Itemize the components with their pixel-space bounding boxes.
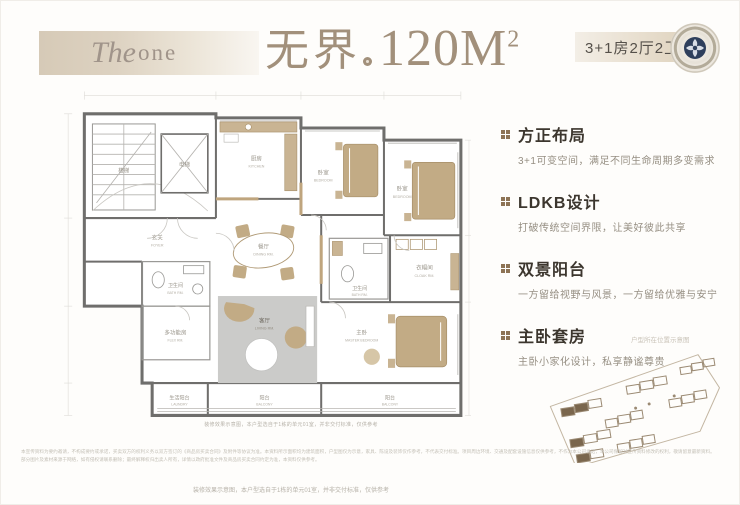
page-title: 无界 120M2 [265, 15, 520, 73]
svg-text:FLEX RM.: FLEX RM. [168, 339, 184, 343]
svg-text:MASTER BEDROOM: MASTER BEDROOM [345, 339, 378, 343]
title-area: 120M2 [379, 25, 520, 73]
plan-caption: 装修效果示意图，本户型选自于1栋的单元01室，并非交付标准，仅供参考 [151, 421, 431, 428]
brand-logo-banner: The one [39, 31, 259, 75]
svg-text:卫生间: 卫生间 [168, 282, 183, 289]
siteplan-caption: 户型所在位置示意图 [631, 334, 690, 344]
four-square-bullet-icon [501, 264, 510, 273]
four-square-bullet-icon [501, 130, 510, 139]
svg-text:衣帽间: 衣帽间 [416, 264, 433, 272]
living-area [218, 296, 317, 383]
svg-text:电梯: 电梯 [179, 160, 191, 168]
feature-title: 方正布局 [518, 122, 586, 146]
dot-separator-icon [363, 57, 372, 66]
svg-text:生活阳台: 生活阳台 [169, 394, 189, 401]
svg-text:KITCHEN: KITCHEN [248, 164, 264, 168]
svg-text:DINING RM.: DINING RM. [253, 253, 273, 257]
svg-text:BATH RM.: BATH RM. [167, 291, 183, 295]
feature-title: 双景阳台 [518, 256, 586, 280]
feature-item: 双景阳台 一方留给视野与风景，一方留给优雅与安宁 [501, 256, 729, 301]
svg-text:阳台: 阳台 [385, 394, 395, 401]
poster-page: The one 无界 120M2 3+1房2厅2卫 [0, 0, 740, 505]
legal-disclaimer: 本宣传资料为要约邀请，不构成要约或承诺，买卖双方的权利义务以双方签订的《商品房买… [21, 448, 727, 464]
svg-text:卧室: 卧室 [318, 169, 330, 177]
svg-text:楼梯: 楼梯 [118, 167, 130, 175]
feature-desc: 3+1可变空间，满足不同生命周期多变需求 [501, 152, 729, 167]
svg-text:餐厅: 餐厅 [258, 242, 270, 250]
svg-text:BALCONY: BALCONY [382, 402, 399, 406]
four-square-bullet-icon [501, 197, 510, 206]
feature-desc: 一方留给视野与风景，一方留给优雅与安宁 [501, 286, 729, 301]
svg-text:客厅: 客厅 [259, 316, 271, 324]
legal-line-1: 本宣传资料为要约邀请，不构成要约或承诺，买卖双方的权利义务以双方签订的《商品房买… [21, 448, 727, 456]
svg-text:阳台: 阳台 [259, 394, 269, 401]
bottom-note: 装修效果示意图，本户型选自于1栋的单元01室，并非交付标准，仅供参考 [151, 485, 431, 494]
legal-line-2: 部分图片及素材来源于网络，如有侵权请联系删除；最终解释权归出卖人所有，详情以政府… [21, 456, 727, 464]
svg-text:BALCONY: BALCONY [256, 402, 273, 406]
svg-text:LIVING RM.: LIVING RM. [255, 326, 275, 330]
brand-logo-script: The [91, 38, 136, 68]
feature-title: 主卧套房 [518, 323, 586, 347]
svg-text:BEDROOM: BEDROOM [393, 195, 412, 199]
unit-spec-text: 3+1房2厅2卫 [585, 37, 680, 58]
feature-item: 方正布局 3+1可变空间，满足不同生命周期多变需求 [501, 122, 729, 167]
svg-text:LAUNDRY: LAUNDRY [171, 402, 188, 406]
title-area-sup: 2 [507, 27, 520, 53]
svg-text:厨房: 厨房 [251, 154, 263, 162]
svg-text:CLOAK RM.: CLOAK RM. [414, 274, 434, 278]
siteplan-map [545, 345, 727, 463]
svg-text:BATH RM.: BATH RM. [352, 293, 368, 297]
svg-text:BEDROOM: BEDROOM [314, 179, 333, 183]
svg-text:玄关: 玄关 [152, 233, 164, 241]
floorplan-drawing: 楼梯 电梯 厨房 KITCHEN 卧室 BEDROOM 卧室 BEDROOM 玄… [56, 81, 471, 426]
brand-logo-text: one [138, 40, 177, 66]
svg-text:卫生间: 卫生间 [352, 285, 367, 292]
four-square-bullet-icon [501, 331, 510, 340]
feature-item: LDKB设计 打破传统空间界限，让美好彼此共享 [501, 189, 729, 234]
svg-text:FOYER: FOYER [151, 243, 164, 247]
title-chinese: 无界 [265, 29, 361, 73]
svg-text:主卧: 主卧 [356, 328, 368, 336]
brand-seal-icon [669, 22, 721, 74]
feature-title: LDKB设计 [518, 189, 600, 213]
feature-desc: 打破传统空间界限，让美好彼此共享 [501, 219, 729, 234]
svg-text:卧室: 卧室 [397, 185, 409, 193]
svg-text:多功能房: 多功能房 [164, 328, 187, 336]
